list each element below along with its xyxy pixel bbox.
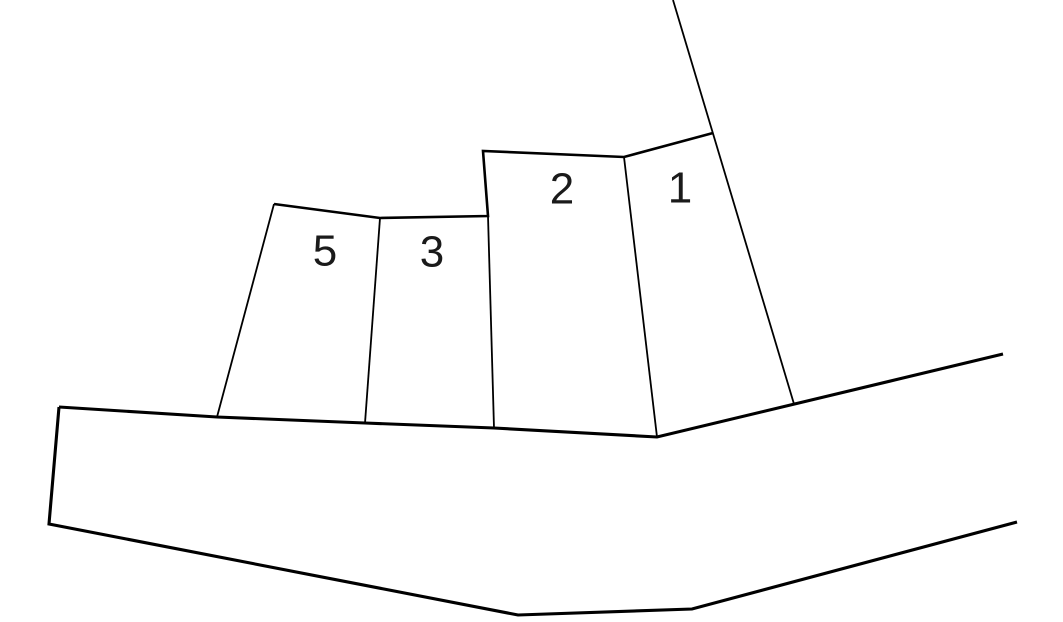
parcel-label-1: 1 bbox=[668, 164, 692, 213]
parcel-label-2: 2 bbox=[550, 165, 574, 214]
parcel-label-3: 3 bbox=[420, 228, 444, 277]
parcel-map-page: 1235 bbox=[0, 0, 1063, 622]
parcel-region-5 bbox=[217, 204, 380, 423]
parcel-label-5: 5 bbox=[313, 227, 337, 276]
parcel-map-svg: 1235 bbox=[0, 0, 1063, 622]
parcel-regions-group bbox=[217, 133, 794, 437]
